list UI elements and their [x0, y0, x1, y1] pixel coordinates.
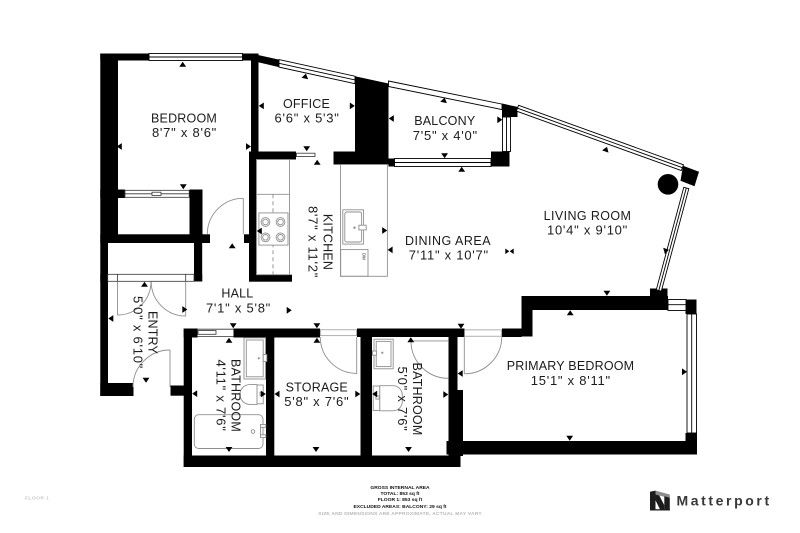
- svg-text:HALL: HALL: [221, 287, 253, 301]
- svg-text:15'1" x 8'11": 15'1" x 8'11": [531, 373, 611, 388]
- svg-text:LIVING ROOM: LIVING ROOM: [544, 209, 632, 223]
- svg-text:STORAGE: STORAGE: [286, 381, 348, 395]
- svg-text:BATHROOM: BATHROOM: [410, 363, 424, 436]
- svg-text:TOTAL: 853 sq ft: TOTAL: 853 sq ft: [380, 491, 419, 497]
- svg-text:5'8" x 7'6": 5'8" x 7'6": [284, 394, 349, 409]
- svg-text:Matterport: Matterport: [677, 493, 772, 509]
- svg-text:DINING AREA: DINING AREA: [405, 234, 491, 248]
- svg-text:8'7" x 11'2": 8'7" x 11'2": [306, 206, 321, 278]
- svg-text:7'5" x 4'0": 7'5" x 4'0": [413, 128, 478, 143]
- svg-text:10'4" x 9'10": 10'4" x 9'10": [547, 223, 628, 238]
- svg-text:SIZE AND DIMENSIONS ARE APPROX: SIZE AND DIMENSIONS ARE APPROXIMATE, ACT…: [318, 511, 482, 517]
- svg-text:4'11" x 7'6": 4'11" x 7'6": [214, 359, 229, 431]
- svg-text:GROSS INTERNAL AREA: GROSS INTERNAL AREA: [370, 485, 430, 491]
- svg-text:FLOOR 1: 853 sq ft: FLOOR 1: 853 sq ft: [378, 497, 423, 503]
- svg-text:5'0" x 6'10": 5'0" x 6'10": [131, 296, 146, 369]
- svg-text:FLOOR 1: FLOOR 1: [25, 496, 49, 502]
- svg-text:7'1" x 5'8": 7'1" x 5'8": [206, 300, 271, 315]
- svg-text:8'7" x 8'6": 8'7" x 8'6": [152, 125, 217, 140]
- svg-text:5'0" x 7'6": 5'0" x 7'6": [395, 366, 410, 431]
- svg-text:DW: DW: [362, 253, 367, 260]
- svg-text:EXCLUDED AREAS: BALCONY: 29 sq: EXCLUDED AREAS: BALCONY: 29 sq ft: [354, 504, 447, 510]
- svg-text:BALCONY: BALCONY: [414, 114, 476, 128]
- svg-text:BATHROOM: BATHROOM: [229, 359, 243, 432]
- svg-text:KITCHEN: KITCHEN: [321, 214, 335, 270]
- svg-text:PRIMARY BEDROOM: PRIMARY BEDROOM: [507, 359, 635, 373]
- svg-text:BEDROOM: BEDROOM: [151, 111, 217, 125]
- svg-text:OFFICE: OFFICE: [283, 97, 330, 111]
- svg-text:7'11" x 10'7": 7'11" x 10'7": [409, 247, 489, 262]
- svg-text:6'6" x 5'3": 6'6" x 5'3": [275, 110, 340, 125]
- svg-text:ENTRY: ENTRY: [146, 311, 160, 355]
